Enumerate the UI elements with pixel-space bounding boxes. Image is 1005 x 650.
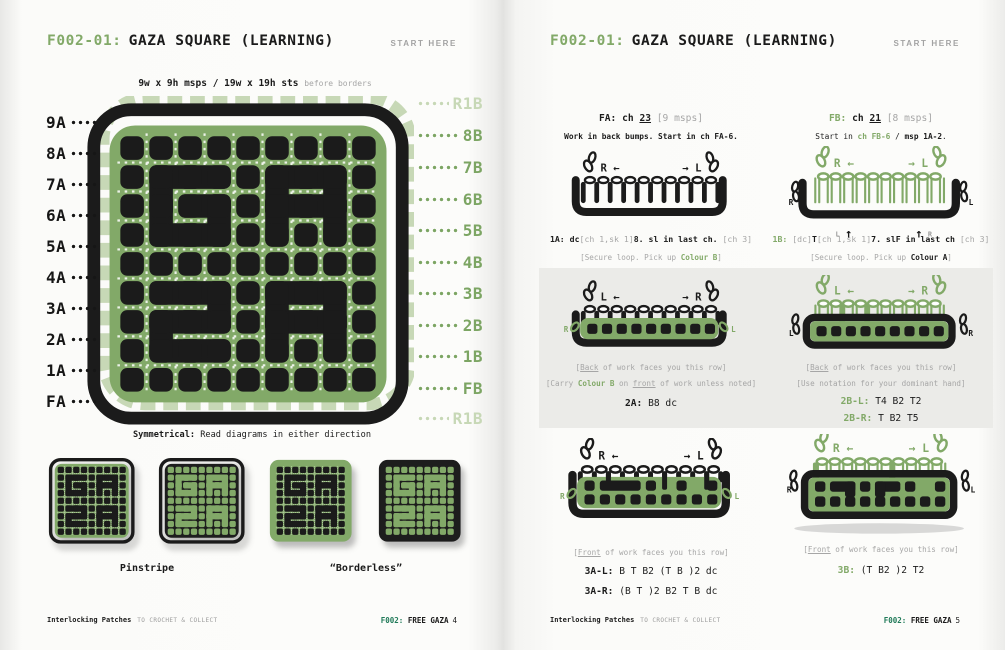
svg-text:L: L <box>731 325 736 334</box>
svg-text:R ←: R ← <box>598 449 618 462</box>
row-label-9A: 9A <box>46 113 104 132</box>
symmetry-text: Read diagrams in either direction <box>195 430 371 440</box>
dotted-leader <box>417 354 459 359</box>
dotted-leader <box>417 228 459 233</box>
row-label-R1B-round: R1B <box>413 409 483 428</box>
row-label-4B: 4B <box>413 253 483 272</box>
svg-text:→ R: → R <box>908 284 928 297</box>
svg-text:L: L <box>969 198 974 207</box>
row-1a-instruction: 1A: dc[ch 1,sk 1]8. sl in last ch. [ch 3… <box>550 234 752 244</box>
fb-foundation-line: FB: ch 21 [8 msps] <box>829 113 933 124</box>
dotted-leader <box>417 133 459 138</box>
row-label-text: 4A <box>46 268 66 287</box>
row-label-text: 7B <box>463 158 483 177</box>
row-label-text: 4B <box>463 253 483 272</box>
row-label-1B: 1B <box>413 347 483 366</box>
dotted-leader <box>70 244 100 249</box>
row-3a-right-instruction: 3A-R: (B T )2 B2 T B dc <box>585 586 718 597</box>
row-3a-diagram: RLR ←→ L <box>554 438 748 536</box>
page-number: 5 <box>955 616 960 625</box>
dotted-leader <box>417 416 449 421</box>
svg-text:R: R <box>564 325 569 334</box>
row-label-8A: 8A <box>46 144 104 163</box>
pattern-code: F002-01: <box>550 33 625 49</box>
row-label-6B: 6B <box>413 190 483 209</box>
row-2a-carry-note: [Carry Colour B on front of work unless … <box>546 379 756 388</box>
gauge-qualifier: before borders <box>304 79 371 88</box>
row-2b-hand-note: [Use notation for your dominant hand] <box>796 379 965 388</box>
footer-series: FREE GAZA <box>911 616 952 625</box>
svg-text:→ R: → R <box>682 290 702 303</box>
row-label-FA: FA <box>46 392 104 411</box>
swatch-pinstripe-colour-b <box>158 456 246 544</box>
dotted-leader <box>417 260 459 265</box>
dotted-leader <box>417 165 459 170</box>
dotted-leader <box>70 151 100 156</box>
dotted-leader <box>417 101 449 106</box>
svg-text:R ←: R ← <box>834 157 854 170</box>
dotted-leader <box>417 291 459 296</box>
pattern-name: GAZA SQUARE (LEARNING) <box>632 33 837 49</box>
swatch-borderless-colour-b <box>376 456 464 544</box>
row-1b-instruction: 1B: [dc]T[ch 1,sk 1]7. slF in last ch [c… <box>773 234 990 244</box>
row-3b-diagram: RLR ←→ L <box>782 434 980 540</box>
page-title: F002-01:GAZA SQUARE (LEARNING) <box>47 33 334 49</box>
footer-page-info: F002: FREE GAZA4 <box>381 616 457 625</box>
start-here-label: START HERE <box>893 39 960 48</box>
row-label-3A: 3A <box>46 299 104 318</box>
svg-text:L: L <box>970 486 975 495</box>
footer-series: FREE GAZA <box>408 616 449 625</box>
row-2a-instruction: 2A: B8 dc <box>625 398 677 409</box>
dotted-leader <box>417 197 459 202</box>
symmetry-note: Symmetrical: Read diagrams in either dir… <box>133 430 371 440</box>
svg-text:R: R <box>560 492 565 501</box>
pattern-name: GAZA SQUARE (LEARNING) <box>129 33 334 49</box>
svg-text:→ L: → L <box>909 442 930 455</box>
row-label-text: FA <box>46 392 66 411</box>
svg-text:R ←: R ← <box>601 161 621 174</box>
row-label-text: 8A <box>46 144 66 163</box>
row-label-text: 6B <box>463 190 483 209</box>
row-label-text: 7A <box>46 175 66 194</box>
row-label-7A: 7A <box>46 175 104 194</box>
start-here-label: START HERE <box>390 39 457 48</box>
fa-foundation-note: Work in back bumps. Start in ch FA-6. <box>564 132 738 141</box>
dotted-leader <box>70 120 100 125</box>
row-2a-facing-note: [Back of work faces you this row] <box>576 363 727 372</box>
row-label-text: 1B <box>463 347 483 366</box>
swatch-borderless-colour-a <box>267 456 355 544</box>
row-label-1A: 1A <box>46 361 104 380</box>
row-1a-diagram: R ←→ L <box>558 150 744 235</box>
fa-foundation-line: FA: ch 23 [9 msps] <box>599 113 703 124</box>
footer-page-info: F002: FREE GAZA5 <box>884 616 960 625</box>
row-3a-facing-note: [Front of work faces you this row] <box>573 548 728 557</box>
footer-brand: Interlocking PatchesTO CROCHET & COLLECT <box>550 616 721 624</box>
dotted-leader <box>70 337 100 342</box>
footer-code: F002: <box>884 616 907 625</box>
page-left: F002-01:GAZA SQUARE (LEARNING) START HER… <box>0 0 502 650</box>
dotted-leader <box>417 386 459 391</box>
footer-code: F002: <box>381 616 404 625</box>
symmetry-lead: Symmetrical: <box>133 430 195 440</box>
gauge-note: 9w x 9h msps / 19w x 19h sts before bord… <box>138 78 371 89</box>
row-label-text: 2A <box>46 330 66 349</box>
row-label-text: 2B <box>463 316 483 335</box>
row-2b-diagram: LRL ←→ R <box>784 275 978 369</box>
swatch-pinstripe-colour-a <box>48 456 136 544</box>
dotted-leader <box>70 213 100 218</box>
row-label-6A: 6A <box>46 206 104 225</box>
row-label-text: 3B <box>463 284 483 303</box>
row-1b-diagram: RLR ←→ L↑L↑R <box>784 146 978 243</box>
row-2b-facing-note: [Back of work faces you this row] <box>806 363 957 372</box>
row-3b-facing-note: [Front of work faces you this row] <box>803 545 958 554</box>
svg-text:L ←: L ← <box>601 290 621 303</box>
svg-text:→ L: → L <box>908 157 928 170</box>
row-label-text: R1B <box>453 94 483 113</box>
swatch-group-label-pinstripe: Pinstripe <box>120 563 174 574</box>
footer-tagline: TO CROCHET & COLLECT <box>137 617 217 624</box>
row-label-text: 5B <box>463 221 483 240</box>
svg-text:L: L <box>789 329 794 338</box>
row-label-7B: 7B <box>413 158 483 177</box>
gaza-square-chart <box>84 96 414 426</box>
row-label-text: 1A <box>46 361 66 380</box>
row-2a-diagram: RLL ←→ R <box>558 279 744 364</box>
row-2b-right-instruction: 2B-R: T B2 T5 <box>843 413 918 424</box>
pattern-code: F002-01: <box>47 33 122 49</box>
dotted-leader <box>70 182 100 187</box>
row-label-FB: FB <box>413 379 483 398</box>
svg-text:R: R <box>968 329 973 338</box>
row-label-text: R1B <box>453 409 483 428</box>
svg-text:→ L: → L <box>684 449 704 462</box>
dotted-leader <box>70 275 100 280</box>
footer-brand-name: Interlocking Patches <box>550 616 634 624</box>
fb-foundation-note: Start in ch FB-6 / msp 1A-2. <box>815 132 946 141</box>
dotted-leader <box>70 368 100 373</box>
dotted-leader <box>70 306 100 311</box>
row-label-text: 3A <box>46 299 66 318</box>
footer-tagline: TO CROCHET & COLLECT <box>640 617 720 624</box>
row-3b-instruction: 3B: (T B2 )2 T2 <box>838 565 925 576</box>
footer-brand-name: Interlocking Patches <box>47 616 131 624</box>
gauge-text: 9w x 9h msps / 19w x 19h sts <box>138 78 298 89</box>
svg-text:L: L <box>735 492 740 501</box>
svg-text:R ←: R ← <box>833 442 854 455</box>
page-right: F002-01:GAZA SQUARE (LEARNING) START HER… <box>503 0 1005 650</box>
row-label-5B: 5B <box>413 221 483 240</box>
row-label-R1B-round: R1B <box>413 94 483 113</box>
svg-text:L ←: L ← <box>834 284 854 297</box>
row-label-8B: 8B <box>413 126 483 145</box>
row-label-3B: 3B <box>413 284 483 303</box>
row-label-text: 5A <box>46 237 66 256</box>
svg-text:R: R <box>789 198 794 207</box>
row-1b-note: [Secure loop. Pick up Colour A] <box>810 253 952 262</box>
page-title: F002-01:GAZA SQUARE (LEARNING) <box>550 33 837 49</box>
row-label-5A: 5A <box>46 237 104 256</box>
svg-text:R: R <box>787 486 792 495</box>
row-3a-left-instruction: 3A-L: B T B2 (T B )2 dc <box>585 566 718 577</box>
row-label-2B: 2B <box>413 316 483 335</box>
footer-brand: Interlocking PatchesTO CROCHET & COLLECT <box>47 616 218 624</box>
dotted-leader <box>417 323 459 328</box>
row-2b-left-instruction: 2B-L: T4 B2 T2 <box>841 396 922 407</box>
row-1a-note: [Secure loop. Pick up Colour B] <box>580 253 722 262</box>
page-number: 4 <box>452 616 457 625</box>
dotted-leader <box>70 399 100 404</box>
row-label-text: 9A <box>46 113 66 132</box>
row-label-text: 6A <box>46 206 66 225</box>
row-label-text: FB <box>463 379 483 398</box>
row-label-4A: 4A <box>46 268 104 287</box>
svg-text:→ L: → L <box>682 161 701 174</box>
row-label-text: 8B <box>463 126 483 145</box>
row-label-2A: 2A <box>46 330 104 349</box>
swatch-group-label-borderless: “Borderless” <box>330 563 402 574</box>
